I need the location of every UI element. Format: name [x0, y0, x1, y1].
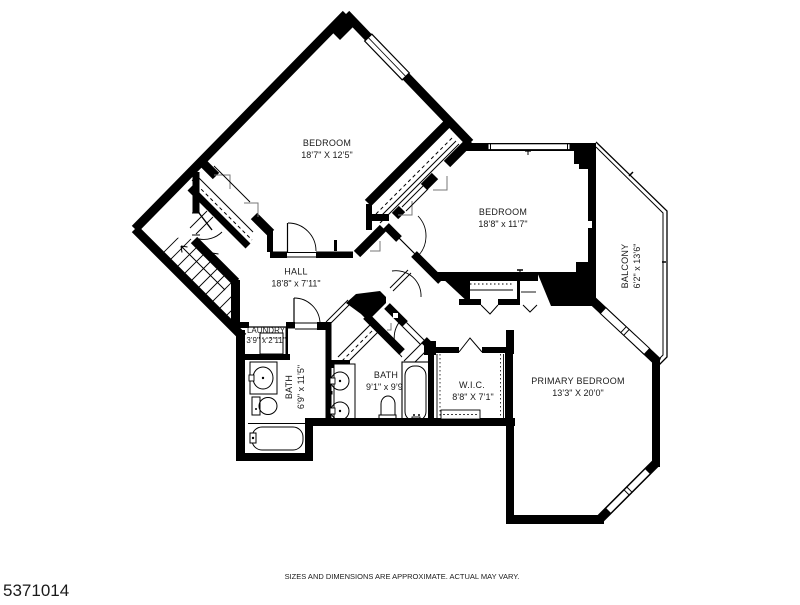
- svg-text:LAUNDRY: LAUNDRY: [247, 326, 286, 335]
- svg-text:6’2" x 13’6": 6’2" x 13’6": [632, 244, 642, 289]
- svg-text:18’8" x 7’11": 18’8" x 7’11": [271, 279, 320, 289]
- svg-text:W.I.C.: W.I.C.: [459, 380, 485, 390]
- svg-text:8’8" X 7’1": 8’8" X 7’1": [452, 392, 493, 402]
- svg-text:BEDROOM: BEDROOM: [303, 138, 351, 148]
- svg-text:3’9" x 2’11": 3’9" x 2’11": [246, 336, 285, 345]
- svg-text:BATH: BATH: [284, 375, 294, 399]
- svg-text:13’3" X 20’0": 13’3" X 20’0": [552, 388, 603, 398]
- svg-text:5371014: 5371014: [3, 581, 69, 600]
- svg-text:18’7" X 12’5": 18’7" X 12’5": [301, 150, 352, 160]
- svg-text:BATH: BATH: [374, 370, 398, 380]
- svg-text:18’8" x 11’7": 18’8" x 11’7": [478, 219, 527, 229]
- svg-text:SIZES AND DIMENSIONS ARE APPRO: SIZES AND DIMENSIONS ARE APPROXIMATE. AC…: [285, 572, 520, 581]
- svg-text:PRIMARY BEDROOM: PRIMARY BEDROOM: [531, 376, 624, 386]
- svg-text:9’1" x 9’9": 9’1" x 9’9": [366, 382, 406, 392]
- svg-text:6’9" x 11’5": 6’9" x 11’5": [296, 365, 306, 409]
- svg-text:BALCONY: BALCONY: [620, 244, 630, 289]
- svg-text:BEDROOM: BEDROOM: [479, 207, 527, 217]
- svg-text:HALL: HALL: [284, 267, 308, 277]
